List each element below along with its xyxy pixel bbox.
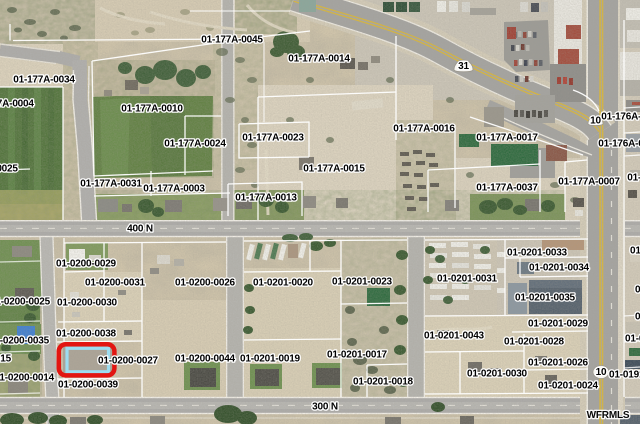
svg-text:01-177A-0017: 01-177A-0017: [476, 133, 538, 144]
svg-text:01-0201-0003: 01-0201-0003: [635, 312, 640, 323]
svg-text:01-0201-0035: 01-0201-0035: [515, 293, 576, 304]
svg-text:01-0201-0001: 01-0201-0001: [630, 246, 640, 257]
svg-text:10: 10: [590, 116, 601, 127]
svg-text:01-0201-0019: 01-0201-0019: [240, 354, 301, 365]
svg-text:01-0200-0035: 01-0200-0035: [0, 336, 50, 347]
svg-text:01-177A-0045: 01-177A-0045: [201, 35, 263, 46]
svg-text:01-0201-0034: 01-0201-0034: [529, 263, 590, 274]
svg-text:01-0201-0043: 01-0201-0043: [424, 331, 485, 342]
svg-text:01-0200-0029: 01-0200-0029: [56, 259, 117, 270]
svg-text:01-176A-0002: 01-176A-0002: [601, 112, 640, 123]
svg-text:01-177A-0016: 01-177A-0016: [393, 124, 455, 135]
svg-text:01-0200-0031: 01-0200-0031: [85, 278, 146, 289]
svg-text:01-177A-0015: 01-177A-0015: [303, 164, 365, 175]
svg-text:01-177A-0023: 01-177A-0023: [242, 133, 304, 144]
svg-text:01-0201-0023: 01-0201-0023: [332, 277, 393, 288]
svg-text:400 N: 400 N: [127, 224, 153, 235]
svg-text:01-0191-0001: 01-0191-0001: [609, 370, 640, 381]
svg-text:01-177A-0004: 01-177A-0004: [0, 99, 34, 110]
svg-text:01-0201-0029: 01-0201-0029: [528, 319, 589, 330]
svg-text:01-176A-0001: 01-176A-0001: [598, 139, 640, 150]
svg-text:01-177A-0025: 01-177A-0025: [0, 164, 18, 175]
svg-text:01-0200-0014: 01-0200-0014: [0, 373, 55, 384]
svg-text:01-0200-0038: 01-0200-0038: [56, 329, 117, 340]
svg-text:01-177A-0024: 01-177A-0024: [164, 139, 226, 150]
svg-text:01-0200-0030: 01-0200-0030: [57, 298, 118, 309]
svg-text:01-0201-0026: 01-0201-0026: [528, 358, 589, 369]
svg-text:01-0200-0025: 01-0200-0025: [0, 297, 51, 308]
svg-text:01-0200-0027: 01-0200-0027: [98, 356, 159, 367]
svg-text:01-0201-0002: 01-0201-0002: [635, 285, 640, 296]
svg-text:01-0200-0044: 01-0200-0044: [175, 354, 236, 365]
svg-text:01-0201-0024: 01-0201-0024: [538, 381, 599, 392]
svg-text:01-176A-0008: 01-176A-0008: [627, 173, 640, 184]
svg-text:01-0201-0031: 01-0201-0031: [437, 274, 498, 285]
svg-text:01-177A-0003: 01-177A-0003: [143, 184, 205, 195]
svg-text:01-177A-0007: 01-177A-0007: [558, 177, 620, 188]
svg-text:300 N: 300 N: [312, 402, 338, 413]
svg-text:01-177A-0013: 01-177A-0013: [235, 193, 297, 204]
svg-text:WFRMLS: WFRMLS: [587, 410, 630, 421]
svg-text:01-177A-0031: 01-177A-0031: [80, 179, 142, 190]
svg-text:01-0201-0033: 01-0201-0033: [507, 248, 568, 259]
svg-text:01-0200-0039: 01-0200-0039: [58, 380, 119, 391]
svg-text:01-177A-0037: 01-177A-0037: [476, 183, 538, 194]
svg-text:01-0201-0030: 01-0201-0030: [467, 369, 528, 380]
svg-text:01-0201-0028: 01-0201-0028: [504, 337, 565, 348]
svg-text:01-0200-0015: 01-0200-0015: [0, 354, 12, 365]
svg-text:01-0200-0026: 01-0200-0026: [175, 278, 236, 289]
svg-text:10: 10: [596, 367, 607, 378]
svg-text:01-0191-0004: 01-0191-0004: [625, 334, 640, 345]
svg-text:01-177A-0010: 01-177A-0010: [121, 104, 183, 115]
svg-text:01-0201-0017: 01-0201-0017: [327, 350, 388, 361]
svg-text:01-0201-0018: 01-0201-0018: [353, 377, 414, 388]
svg-text:01-177A-0014: 01-177A-0014: [288, 54, 350, 65]
svg-text:01-177A-0034: 01-177A-0034: [13, 75, 75, 86]
svg-text:01-0201-0020: 01-0201-0020: [253, 278, 314, 289]
svg-text:31: 31: [458, 61, 469, 72]
